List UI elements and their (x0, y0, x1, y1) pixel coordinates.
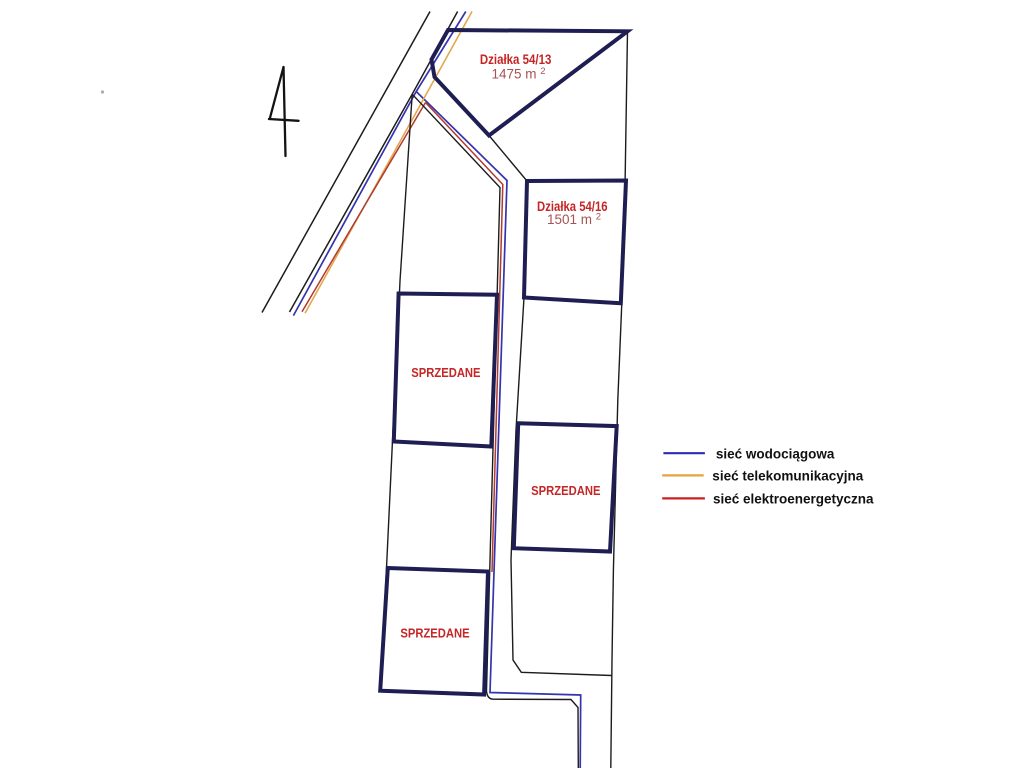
svg-text:sieć elektroenergetyczna: sieć elektroenergetyczna (713, 491, 874, 507)
svg-text:1475 m 2: 1475 m 2 (491, 66, 545, 82)
svg-text:SPRZEDANE: SPRZEDANE (411, 365, 481, 380)
svg-text:SPRZEDANE: SPRZEDANE (400, 625, 470, 640)
svg-text:sieć wodociągowa: sieć wodociągowa (716, 445, 835, 461)
svg-text:1501 m 2: 1501 m 2 (547, 212, 601, 228)
svg-text:SPRZEDANE: SPRZEDANE (531, 483, 601, 498)
svg-text:sieć telekomunikacyjna: sieć telekomunikacyjna (712, 468, 863, 484)
svg-text:Działka 54/13: Działka 54/13 (480, 51, 552, 67)
